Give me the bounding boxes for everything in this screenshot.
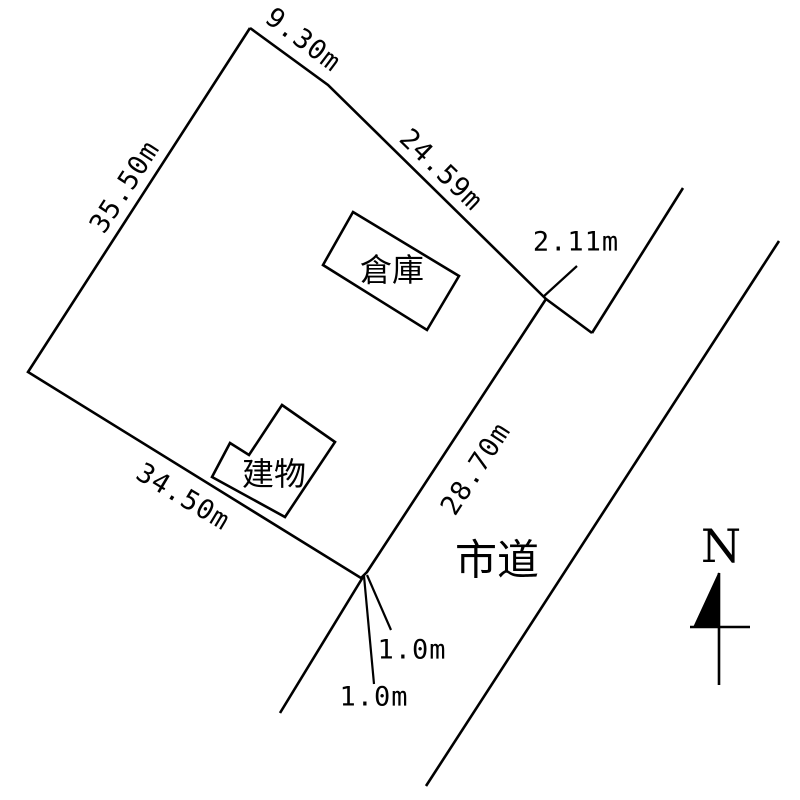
building-label: 建物	[242, 456, 306, 492]
warehouse-label: 倉庫	[360, 252, 424, 288]
buildings-layer: 倉庫建物	[212, 212, 459, 517]
dim-tick-1-0m-right	[367, 575, 391, 630]
boundary-extension	[546, 299, 592, 333]
road-left-edge-upper	[592, 188, 683, 333]
dim-28-70m: 28.70m	[435, 417, 517, 521]
road-name-label: 市道	[455, 537, 539, 584]
north-arrow: N	[690, 519, 750, 685]
dim-24-59m: 24.59m	[393, 123, 489, 217]
north-arrow-pennant	[694, 573, 719, 627]
dim-2-11m: 2.11m	[533, 227, 619, 258]
north-letter: N	[701, 519, 741, 573]
site-plan-svg: 倉庫建物 9.30m24.59m35.50m2.11m28.70m34.50m1…	[0, 0, 800, 800]
site-plan-page: 倉庫建物 9.30m24.59m35.50m2.11m28.70m34.50m1…	[0, 0, 800, 800]
road-right-edge	[426, 241, 779, 786]
dim-1-0m-left: 1.0m	[339, 682, 408, 713]
dim-tick-2-11m	[543, 266, 577, 297]
dim-tick-1-0m-left	[364, 576, 374, 684]
dim-1-0m-right: 1.0m	[377, 635, 446, 666]
